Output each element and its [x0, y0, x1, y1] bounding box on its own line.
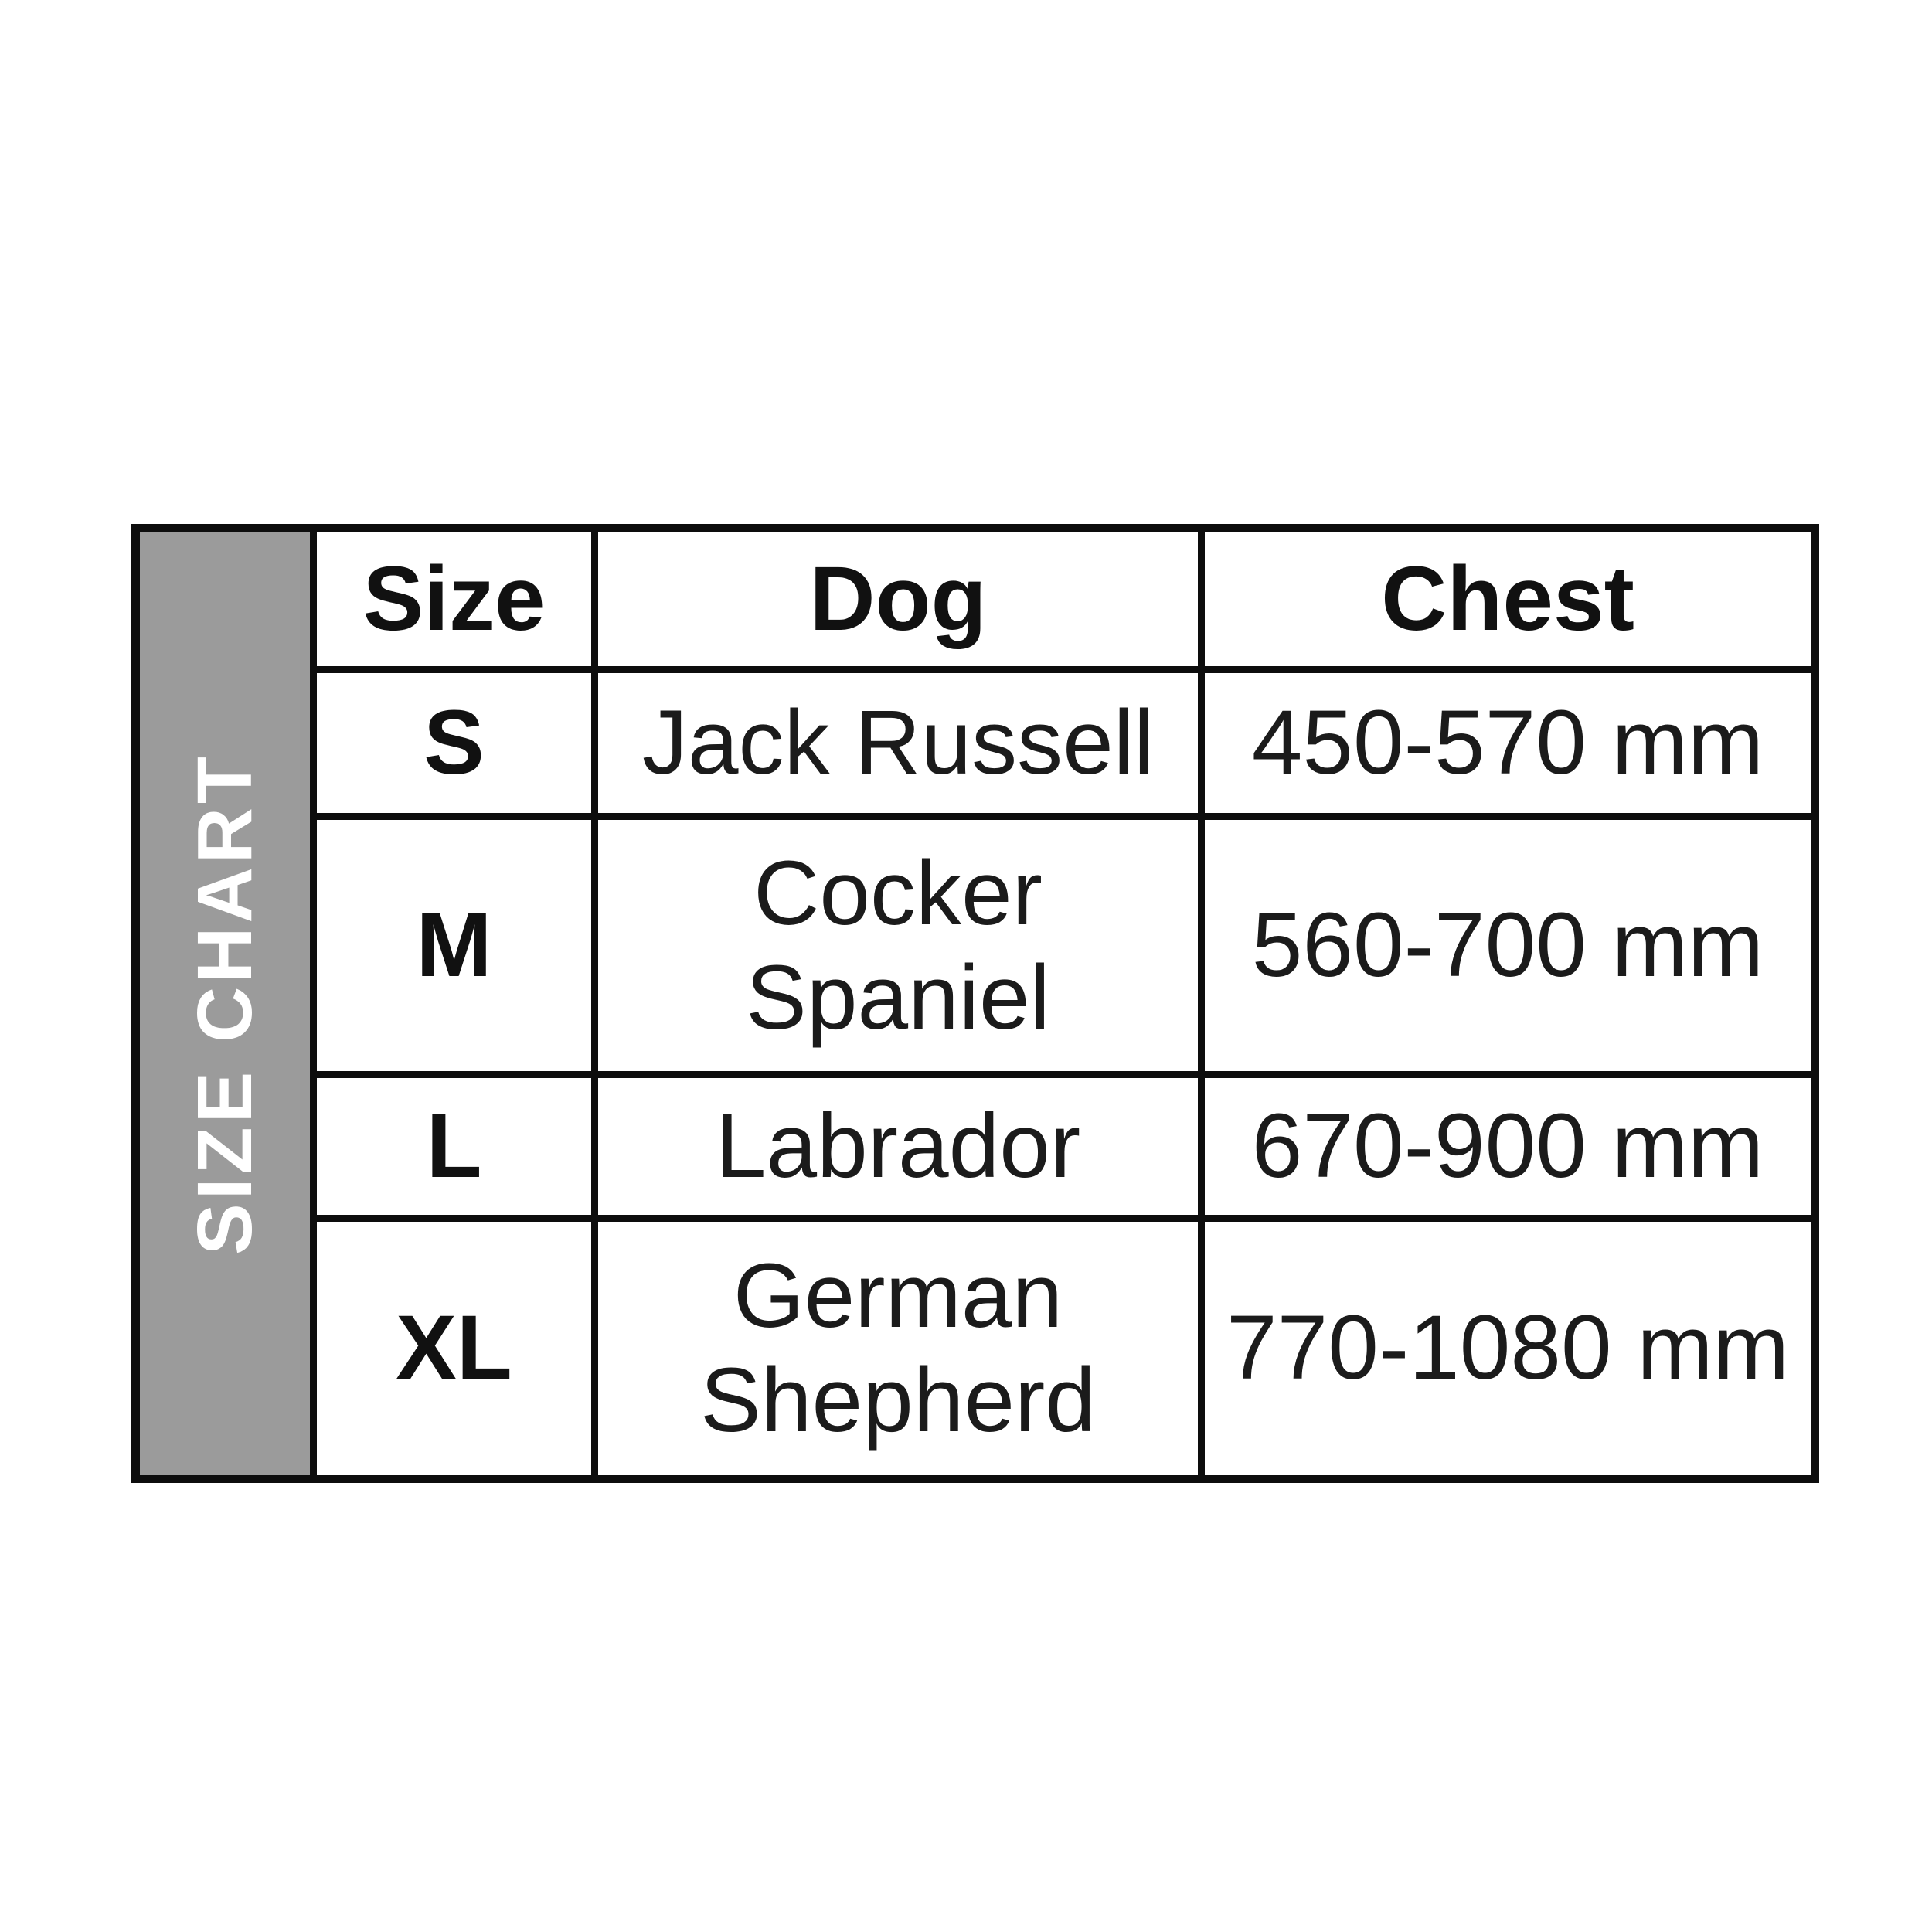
size-chart-image: SIZE CHART Size Dog Chest S Jack Russell…: [0, 0, 1932, 1932]
row-m-chest-cell: 560-700 mm: [1205, 820, 1811, 1071]
row-s-dog-cell: Jack Russell: [598, 673, 1198, 813]
row-s-chest-cell: 450-570 mm: [1205, 673, 1811, 813]
row-s-size-cell: S: [317, 673, 591, 813]
row-xl-chest-cell: 770-1080 mm: [1205, 1222, 1811, 1475]
size-chart-sidebar: SIZE CHART: [140, 532, 310, 1475]
row-m-dog-cell: Cocker Spaniel: [598, 820, 1198, 1071]
row-l-size-cell: L: [317, 1078, 591, 1215]
column-header-chest: Chest: [1205, 532, 1811, 666]
row-xl-dog-cell: German Shepherd: [598, 1222, 1198, 1475]
row-l-dog-cell: Labrador: [598, 1078, 1198, 1215]
column-header-size: Size: [317, 532, 591, 666]
size-chart-table: SIZE CHART Size Dog Chest S Jack Russell…: [131, 524, 1819, 1483]
row-xl-size-cell: XL: [317, 1222, 591, 1475]
row-l-chest-cell: 670-900 mm: [1205, 1078, 1811, 1215]
row-m-size-cell: M: [317, 820, 591, 1071]
column-header-dog: Dog: [598, 532, 1198, 666]
size-chart-vertical-label: SIZE CHART: [181, 753, 269, 1255]
